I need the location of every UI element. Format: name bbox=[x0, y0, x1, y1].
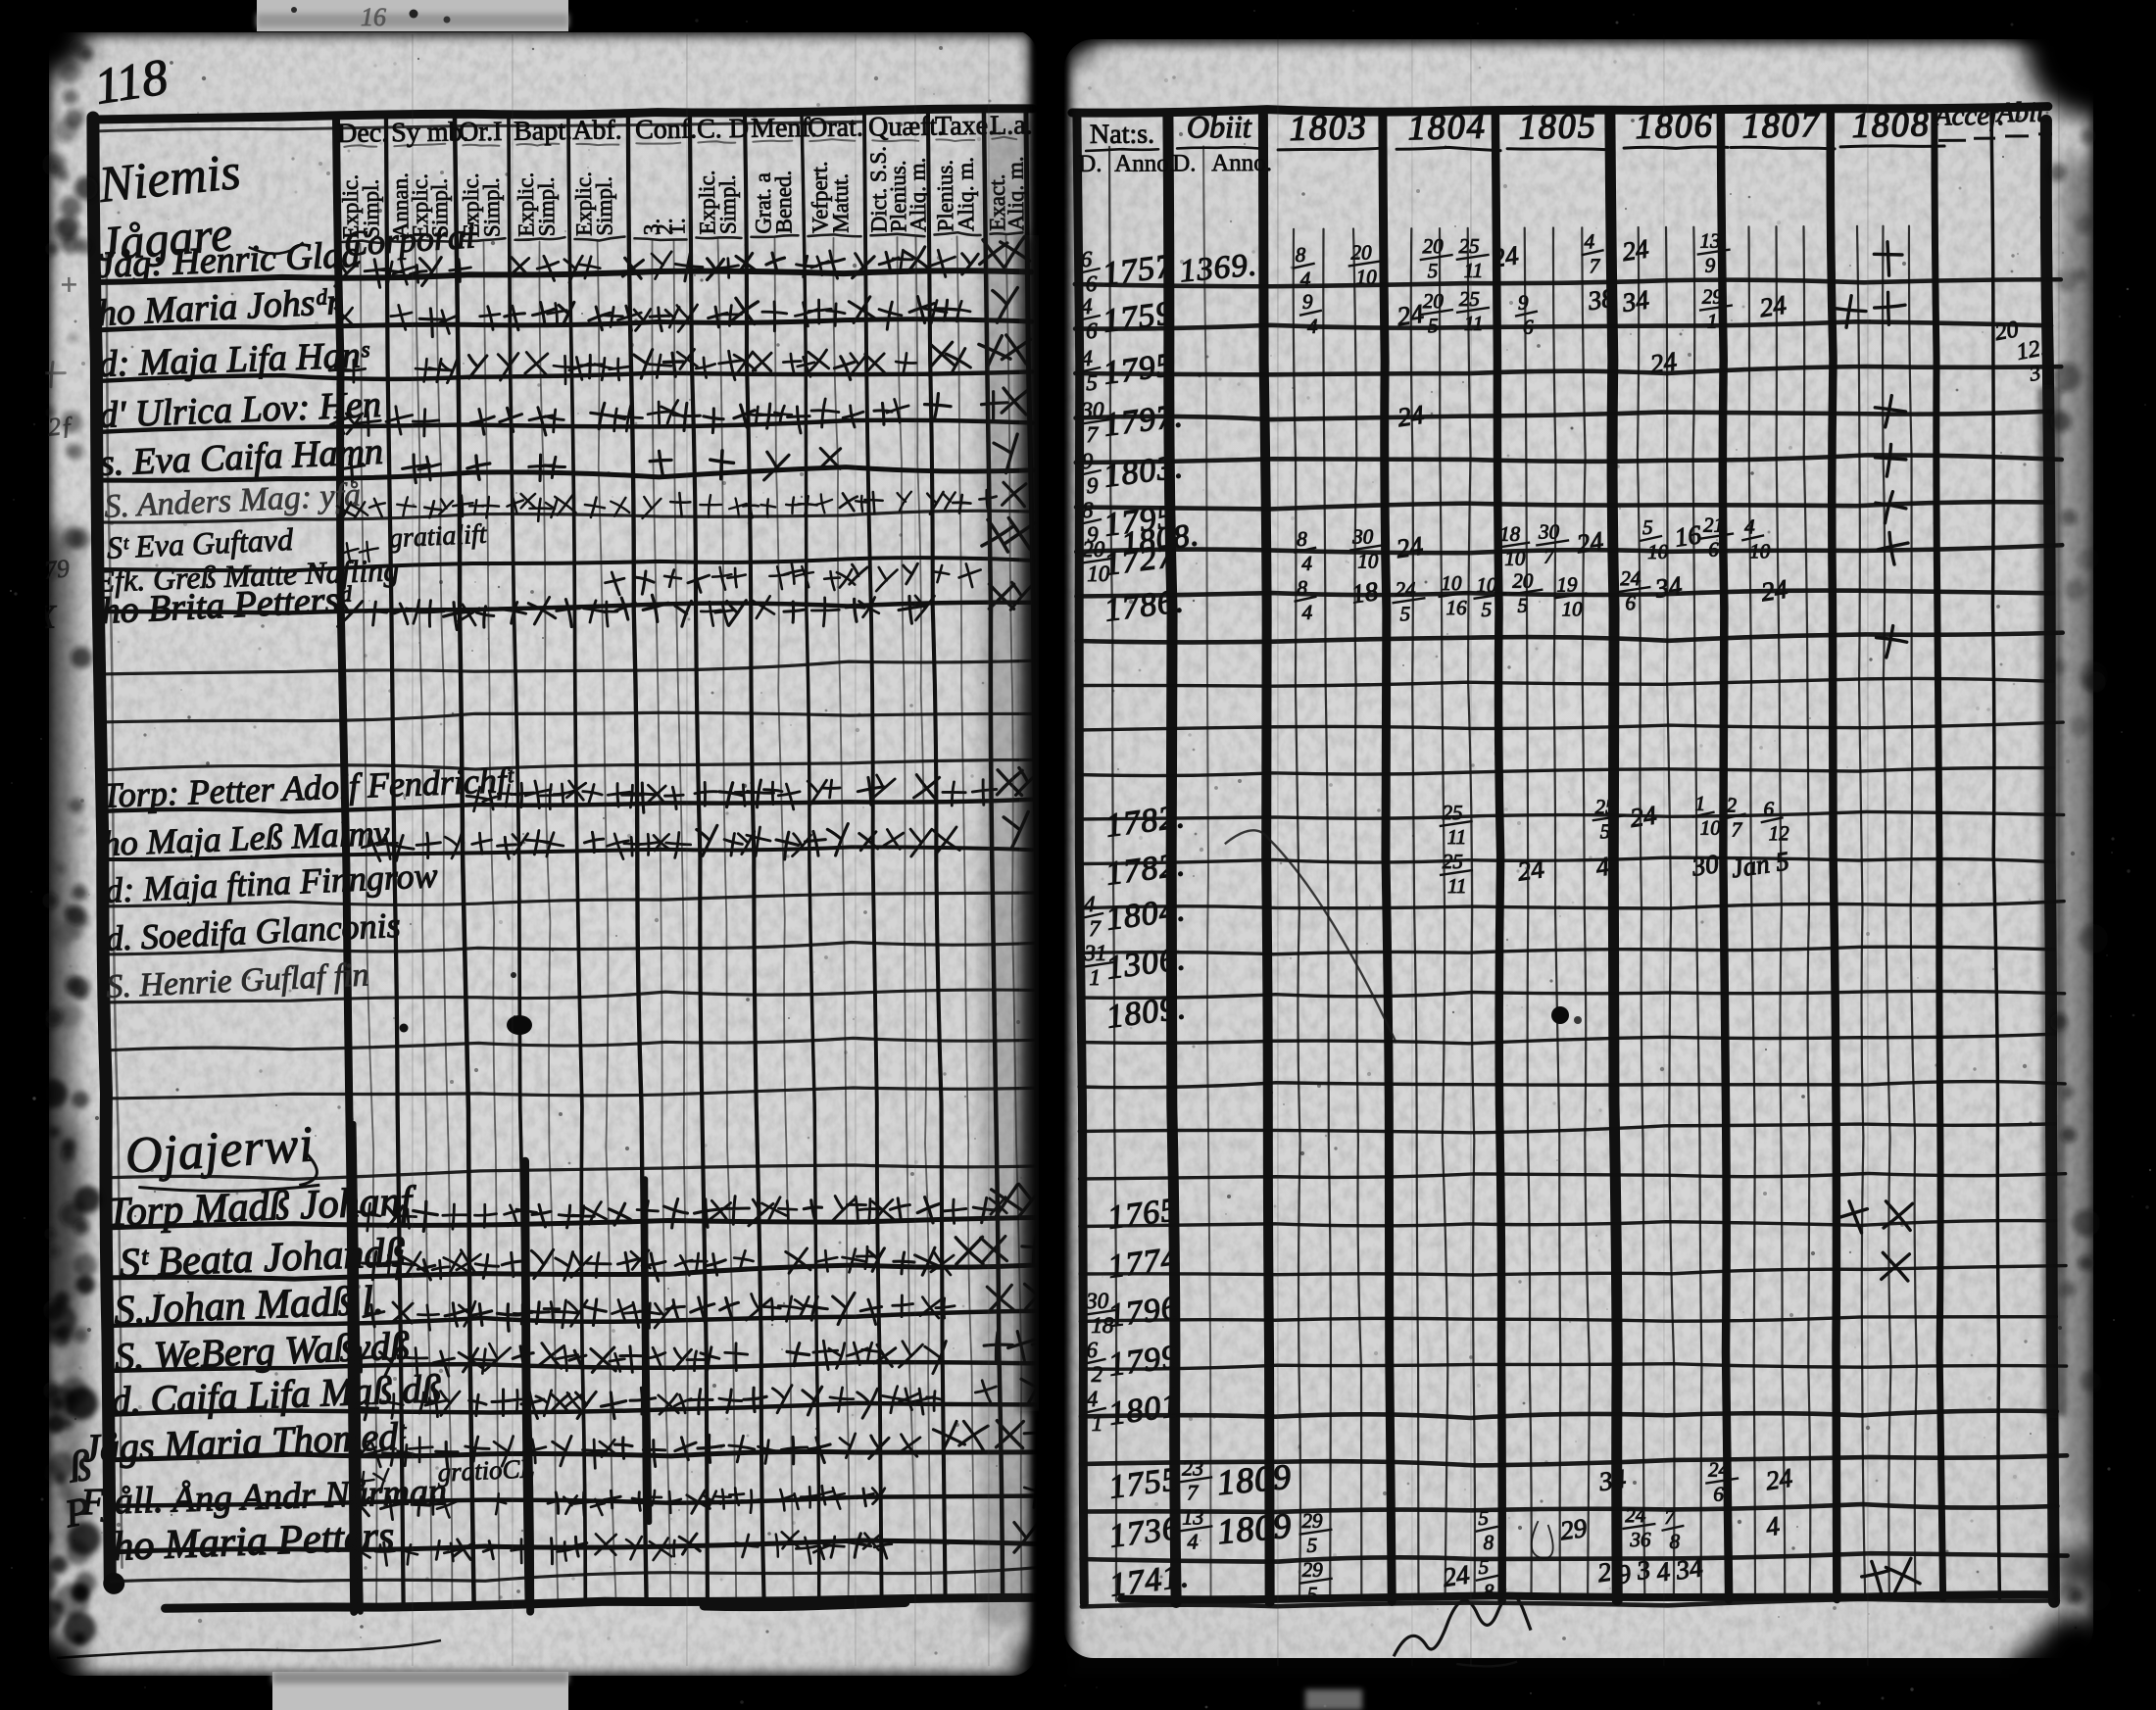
svg-text:24: 24 bbox=[1764, 1463, 1794, 1496]
svg-text:Abit.: Abit. bbox=[1995, 97, 2052, 128]
svg-text:1.: 1. bbox=[664, 218, 689, 235]
svg-text:1806: 1806 bbox=[1635, 105, 1714, 146]
svg-text:9: 9 bbox=[1518, 291, 1529, 315]
svg-text:8: 8 bbox=[1297, 576, 1307, 600]
svg-text:24: 24 bbox=[1620, 566, 1641, 590]
svg-text:4: 4 bbox=[1187, 1529, 1198, 1553]
svg-text:Accef.: Accef. bbox=[1933, 100, 2005, 131]
svg-text:Aliq. m.: Aliq. m. bbox=[906, 158, 931, 232]
svg-text:6: 6 bbox=[1708, 538, 1719, 562]
svg-text:10: 10 bbox=[1561, 597, 1583, 620]
svg-text:34: 34 bbox=[1673, 1552, 1704, 1586]
svg-text:19: 19 bbox=[1556, 572, 1578, 596]
svg-text:10: 10 bbox=[1647, 540, 1669, 563]
svg-text:4: 4 bbox=[1744, 514, 1755, 538]
svg-text:11: 11 bbox=[1447, 874, 1467, 898]
svg-text:6: 6 bbox=[1625, 591, 1636, 614]
svg-text:1805: 1805 bbox=[1518, 106, 1597, 147]
svg-text:25: 25 bbox=[1443, 850, 1463, 873]
svg-text:1: 1 bbox=[1707, 310, 1718, 333]
svg-text:30: 30 bbox=[1690, 849, 1722, 882]
svg-text:24: 24 bbox=[1396, 400, 1426, 433]
svg-text:30: 30 bbox=[1538, 519, 1560, 543]
svg-text:20: 20 bbox=[1423, 234, 1445, 258]
svg-text:11: 11 bbox=[1464, 312, 1484, 335]
svg-text:Quæft.: Quæft. bbox=[868, 111, 944, 142]
svg-text:24: 24 bbox=[1625, 1503, 1646, 1527]
svg-text:1803: 1803 bbox=[1289, 107, 1368, 148]
svg-text:7: 7 bbox=[1089, 916, 1102, 941]
svg-text:1804: 1804 bbox=[1407, 106, 1487, 147]
svg-text:29: 29 bbox=[1302, 1558, 1324, 1582]
svg-text:Sy mb.: Sy mb. bbox=[391, 117, 469, 148]
svg-text:1809: 1809 bbox=[1216, 1505, 1294, 1551]
svg-text:8: 8 bbox=[1296, 243, 1306, 267]
svg-text:Anno.: Anno. bbox=[1211, 150, 1272, 176]
svg-text:+: + bbox=[59, 269, 79, 301]
svg-text:Obiit: Obiit bbox=[1187, 109, 1252, 144]
svg-text:6: 6 bbox=[1713, 1483, 1724, 1506]
svg-text:34: 34 bbox=[1596, 1464, 1628, 1497]
svg-text:34: 34 bbox=[1620, 284, 1651, 318]
svg-text:16: 16 bbox=[1673, 519, 1704, 553]
svg-text:Aliq. m.: Aliq. m. bbox=[954, 157, 979, 231]
svg-text:5: 5 bbox=[1600, 819, 1611, 843]
svg-text:10: 10 bbox=[1700, 816, 1722, 840]
svg-text:24: 24 bbox=[1490, 240, 1520, 273]
svg-text:23: 23 bbox=[1182, 1455, 1203, 1480]
svg-text:Simpl.: Simpl. bbox=[479, 177, 505, 237]
svg-text:11: 11 bbox=[1447, 825, 1467, 849]
svg-text:13: 13 bbox=[1700, 229, 1721, 253]
svg-text:Bapt.: Bapt. bbox=[514, 116, 572, 147]
svg-text:9: 9 bbox=[1302, 290, 1313, 314]
svg-text:24: 24 bbox=[1395, 531, 1425, 564]
svg-text:25: 25 bbox=[1459, 287, 1480, 311]
svg-text:9: 9 bbox=[1705, 254, 1716, 277]
svg-text:1809: 1809 bbox=[1215, 1456, 1293, 1502]
svg-text:Abf.: Abf. bbox=[572, 115, 622, 146]
svg-text:36: 36 bbox=[1629, 1528, 1651, 1551]
svg-text:5: 5 bbox=[1307, 1583, 1318, 1606]
svg-text:24: 24 bbox=[1516, 854, 1546, 887]
svg-text:10: 10 bbox=[1749, 539, 1771, 562]
svg-text:2: 2 bbox=[1092, 1362, 1103, 1387]
svg-text:20: 20 bbox=[1512, 569, 1534, 593]
svg-text:4: 4 bbox=[1585, 229, 1595, 253]
svg-text:5: 5 bbox=[1642, 515, 1653, 539]
svg-text:29: 29 bbox=[1301, 1509, 1323, 1533]
svg-text:1369.: 1369. bbox=[1178, 247, 1258, 289]
svg-text:25: 25 bbox=[1459, 234, 1480, 258]
svg-text:5: 5 bbox=[1306, 1534, 1317, 1557]
svg-text:13: 13 bbox=[1182, 1504, 1203, 1529]
svg-text:12: 12 bbox=[1769, 821, 1790, 845]
svg-text:24: 24 bbox=[1759, 574, 1789, 608]
svg-text:4: 4 bbox=[1307, 315, 1318, 338]
svg-text:10: 10 bbox=[1356, 265, 1378, 288]
svg-text:8: 8 bbox=[1483, 1531, 1494, 1554]
svg-text:29: 29 bbox=[1558, 1513, 1590, 1546]
svg-text:25: 25 bbox=[1443, 801, 1463, 824]
svg-text:8: 8 bbox=[1297, 527, 1307, 551]
svg-text:118: 118 bbox=[91, 49, 171, 116]
svg-text:5: 5 bbox=[1481, 598, 1492, 621]
svg-text:Simpl.: Simpl. bbox=[592, 176, 617, 236]
svg-text:Bened.: Bened. bbox=[771, 171, 797, 234]
svg-text:16: 16 bbox=[361, 3, 386, 31]
svg-text:10: 10 bbox=[1441, 571, 1462, 595]
svg-text:Simpl.: Simpl. bbox=[715, 174, 741, 234]
svg-text:24: 24 bbox=[1575, 526, 1605, 560]
svg-text:5: 5 bbox=[1479, 1555, 1490, 1579]
svg-text:10: 10 bbox=[1504, 547, 1526, 570]
svg-text:30: 30 bbox=[1351, 524, 1374, 548]
svg-text:Conf.: Conf. bbox=[635, 114, 697, 145]
svg-text:18: 18 bbox=[1499, 522, 1521, 546]
svg-text:1808: 1808 bbox=[1851, 104, 1931, 145]
svg-text:10: 10 bbox=[1476, 573, 1497, 597]
svg-text:25: 25 bbox=[1595, 795, 1616, 818]
svg-text:34: 34 bbox=[1652, 570, 1684, 604]
svg-text:4: 4 bbox=[1300, 268, 1311, 291]
svg-text:10: 10 bbox=[1357, 549, 1379, 572]
svg-text:21: 21 bbox=[1703, 513, 1724, 537]
svg-text:24: 24 bbox=[1396, 299, 1426, 332]
svg-text:20: 20 bbox=[1351, 240, 1373, 264]
svg-text:D.: D. bbox=[1172, 150, 1196, 176]
svg-text:24: 24 bbox=[1620, 233, 1650, 267]
svg-text:Matut.: Matut. bbox=[828, 173, 854, 233]
svg-text:Simpl.: Simpl. bbox=[534, 176, 560, 236]
svg-text:1807: 1807 bbox=[1741, 105, 1821, 146]
svg-text:Or.I: Or.I bbox=[459, 117, 503, 148]
svg-text:7: 7 bbox=[1732, 817, 1743, 841]
svg-text:8: 8 bbox=[1484, 1580, 1494, 1603]
svg-text:1: 1 bbox=[1695, 792, 1706, 815]
svg-text:24: 24 bbox=[1708, 1458, 1730, 1482]
svg-text:C. D: C. D bbox=[697, 114, 749, 145]
svg-text:6: 6 bbox=[1523, 316, 1534, 339]
svg-text:1: 1 bbox=[1092, 1411, 1103, 1436]
svg-text:7: 7 bbox=[1187, 1480, 1199, 1504]
svg-text:24: 24 bbox=[1758, 290, 1788, 323]
svg-text:18: 18 bbox=[1349, 576, 1381, 610]
svg-text:gratialift: gratialift bbox=[388, 519, 488, 555]
svg-text:7: 7 bbox=[1543, 544, 1555, 567]
svg-text:11: 11 bbox=[1464, 259, 1484, 282]
svg-text:6: 6 bbox=[1764, 797, 1775, 820]
svg-text:Nat:s.: Nat:s. bbox=[1090, 120, 1154, 150]
svg-text:24: 24 bbox=[1628, 800, 1658, 833]
svg-text:24: 24 bbox=[1441, 1559, 1471, 1592]
svg-text:4: 4 bbox=[1301, 601, 1312, 624]
svg-text:gratioCL: gratioCL bbox=[437, 1453, 535, 1488]
svg-text:20: 20 bbox=[1423, 289, 1445, 313]
svg-text:16: 16 bbox=[1445, 596, 1467, 619]
svg-text:29: 29 bbox=[1702, 285, 1724, 309]
svg-text:Anno.: Anno. bbox=[1114, 150, 1175, 176]
svg-text:5: 5 bbox=[1400, 602, 1411, 625]
svg-text:1: 1 bbox=[1089, 965, 1101, 990]
svg-text:7: 7 bbox=[1590, 254, 1601, 277]
svg-text:4: 4 bbox=[1301, 552, 1312, 575]
svg-text:5: 5 bbox=[1428, 314, 1439, 337]
svg-text:38: 38 bbox=[1585, 283, 1617, 317]
svg-text:8: 8 bbox=[1669, 1530, 1680, 1553]
svg-text:5: 5 bbox=[1478, 1506, 1489, 1530]
svg-text:2: 2 bbox=[1727, 793, 1738, 816]
svg-text:7: 7 bbox=[1664, 1505, 1676, 1529]
svg-text:5: 5 bbox=[1428, 259, 1439, 282]
